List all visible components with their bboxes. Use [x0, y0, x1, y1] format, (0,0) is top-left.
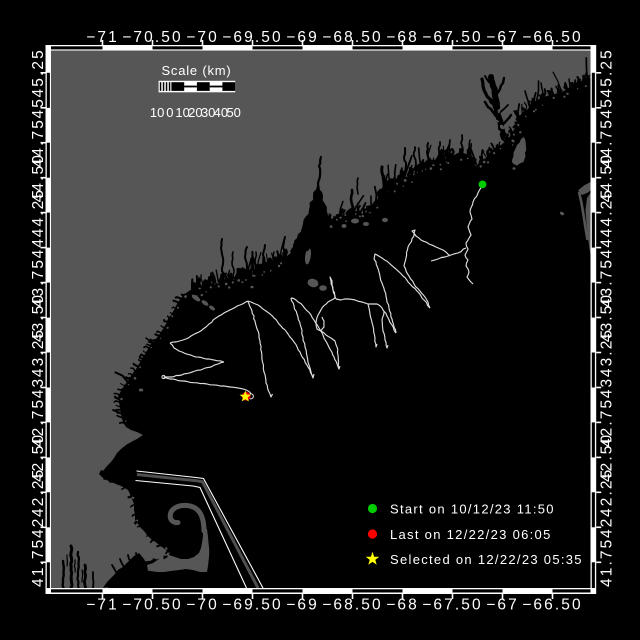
- svg-text:−67.50: −67.50: [422, 597, 482, 614]
- svg-text:44.25: 44.25: [599, 188, 616, 237]
- svg-text:Selected on 12/22/23 05:35: Selected on 12/22/23 05:35: [390, 552, 583, 567]
- svg-text:−69.50: −69.50: [222, 597, 282, 614]
- svg-text:−68: −68: [386, 597, 419, 614]
- svg-text:Scale (km): Scale (km): [161, 63, 231, 78]
- svg-text:42: 42: [599, 517, 616, 538]
- svg-text:−70.50: −70.50: [122, 597, 182, 614]
- svg-text:−67.50: −67.50: [422, 29, 482, 46]
- svg-text:45: 45: [599, 97, 616, 118]
- svg-text:−66.50: −66.50: [522, 597, 582, 614]
- svg-text:−71: −71: [86, 29, 119, 46]
- svg-text:41.75: 41.75: [599, 538, 616, 587]
- svg-text:43.25: 43.25: [30, 328, 47, 377]
- svg-text:−69: −69: [286, 29, 319, 46]
- svg-text:−70.50: −70.50: [122, 29, 182, 46]
- svg-text:42: 42: [30, 517, 47, 538]
- svg-text:42.25: 42.25: [599, 468, 616, 517]
- svg-text:41.75: 41.75: [30, 538, 47, 587]
- svg-text:44: 44: [599, 237, 616, 258]
- svg-text:44.25: 44.25: [30, 188, 47, 237]
- svg-text:−69.50: −69.50: [222, 29, 282, 46]
- svg-text:44: 44: [30, 237, 47, 258]
- svg-text:43.25: 43.25: [599, 328, 616, 377]
- svg-text:−70: −70: [186, 29, 219, 46]
- svg-text:43: 43: [30, 377, 47, 398]
- svg-text:50: 50: [226, 105, 240, 120]
- svg-text:−67: −67: [486, 29, 519, 46]
- svg-text:42.25: 42.25: [30, 468, 47, 517]
- svg-text:45.25: 45.25: [30, 48, 47, 97]
- svg-text:−68: −68: [386, 29, 419, 46]
- svg-text:−67: −67: [486, 597, 519, 614]
- svg-text:43: 43: [599, 377, 616, 398]
- svg-text:10: 10: [150, 105, 164, 120]
- svg-text:45: 45: [30, 97, 47, 118]
- svg-text:−69: −69: [286, 597, 319, 614]
- svg-text:Last on 12/22/23 06:05: Last on 12/22/23 06:05: [390, 527, 552, 542]
- svg-text:Start on 10/12/23 11:50: Start on 10/12/23 11:50: [390, 502, 555, 517]
- svg-text:−68.50: −68.50: [322, 29, 382, 46]
- svg-text:−71: −71: [86, 597, 119, 614]
- svg-text:0: 0: [166, 105, 173, 120]
- svg-text:−66.50: −66.50: [522, 29, 582, 46]
- svg-text:−70: −70: [186, 597, 219, 614]
- svg-text:−68.50: −68.50: [322, 597, 382, 614]
- svg-text:45.25: 45.25: [599, 48, 616, 97]
